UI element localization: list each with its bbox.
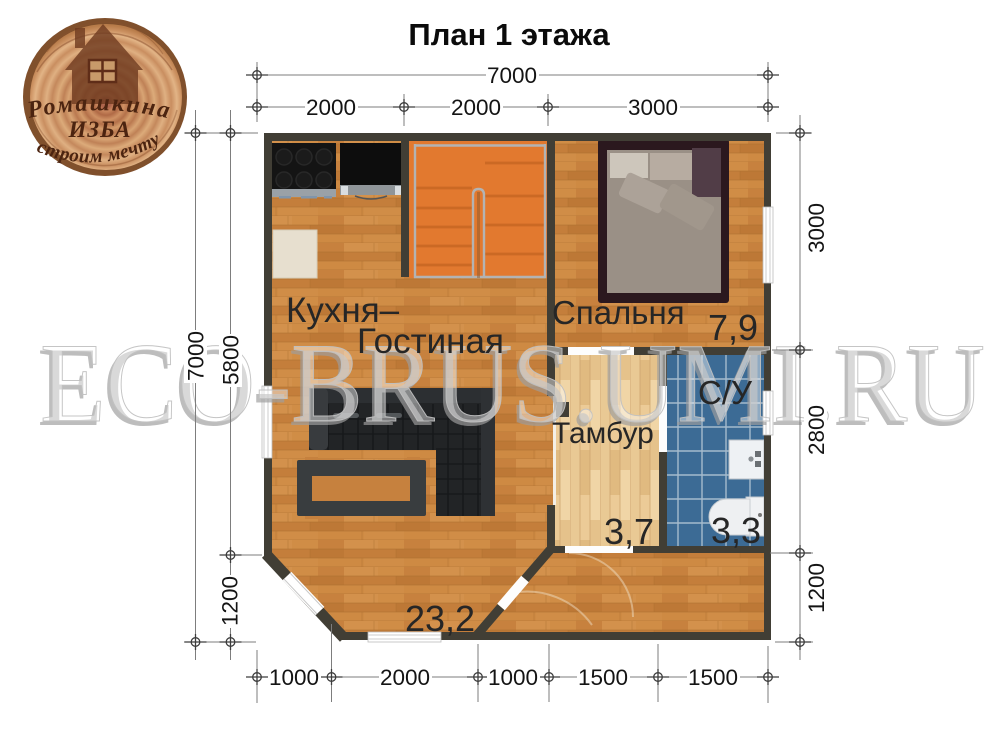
svg-text:2800: 2800 (804, 405, 829, 455)
svg-text:1500: 1500 (578, 665, 628, 690)
svg-text:С/У: С/У (698, 374, 753, 411)
svg-text:2000: 2000 (306, 95, 356, 120)
svg-text:7,9: 7,9 (708, 307, 758, 348)
svg-text:1200: 1200 (804, 563, 829, 613)
svg-text:3,3: 3,3 (711, 510, 761, 551)
svg-text:2000: 2000 (451, 95, 501, 120)
svg-text:Гостиная: Гостиная (357, 322, 504, 361)
svg-text:3,7: 3,7 (604, 511, 654, 552)
svg-text:3000: 3000 (628, 95, 678, 120)
svg-text:3000: 3000 (804, 203, 829, 253)
svg-text:Спальня: Спальня (552, 294, 685, 331)
svg-text:1200: 1200 (218, 576, 243, 626)
svg-text:План 1 этажа: План 1 этажа (408, 17, 610, 52)
svg-text:23,2: 23,2 (405, 598, 475, 639)
svg-text:7000: 7000 (487, 63, 537, 88)
svg-text:1000: 1000 (269, 665, 319, 690)
svg-text:ECO-BRUS.UMI.RU: ECO-BRUS.UMI.RU (40, 321, 985, 446)
svg-text:Тамбур: Тамбур (552, 417, 654, 450)
svg-text:ИЗБА: ИЗБА (68, 117, 132, 142)
svg-text:1000: 1000 (488, 665, 538, 690)
svg-text:7000: 7000 (184, 331, 209, 381)
svg-text:1500: 1500 (688, 665, 738, 690)
svg-text:2000: 2000 (380, 665, 430, 690)
svg-text:5800: 5800 (219, 335, 244, 385)
